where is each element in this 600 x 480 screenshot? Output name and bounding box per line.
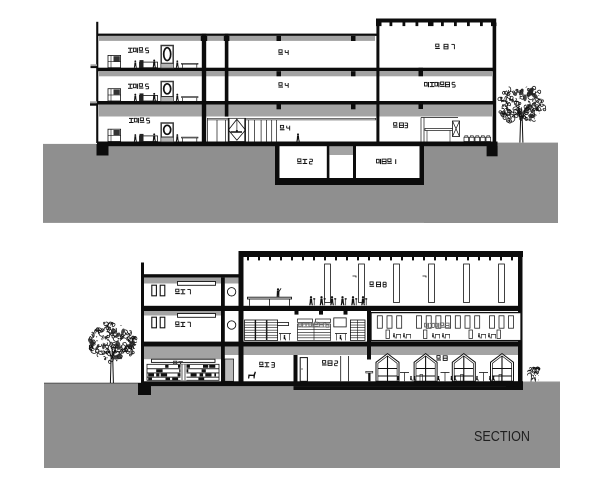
svg-text:SECTION: SECTION <box>474 429 530 445</box>
